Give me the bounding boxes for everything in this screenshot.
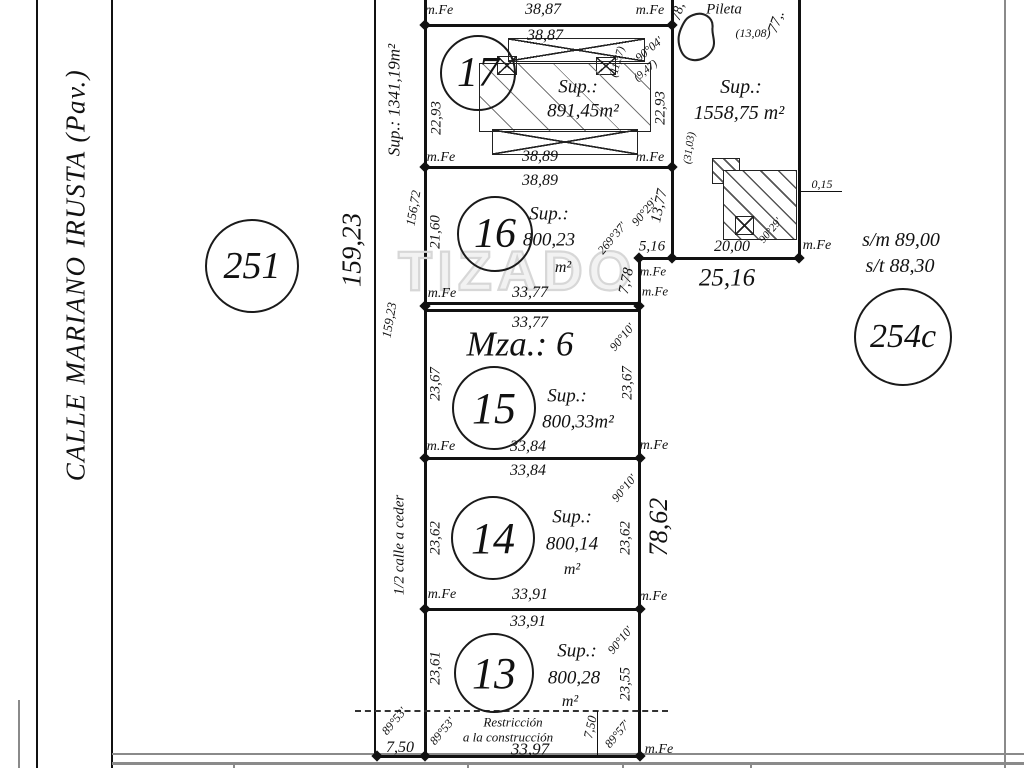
corner-line-sw	[18, 700, 20, 768]
survey-plan: TIZADO m.Fe38,87m.Fe38,8722,93Sup.:891,4…	[0, 0, 1024, 768]
mfe-marker: m.Fe	[640, 439, 668, 453]
building-offset-dim: 0,15	[812, 178, 833, 190]
pileta-aux-dim: (13,08)	[736, 27, 771, 39]
west-boundary-dim: 159,23	[339, 213, 366, 287]
lot17-dim-east: 22,93	[654, 91, 669, 125]
lot16-dim-south: 33,77	[512, 285, 548, 301]
parcel-circle-254c: 254c	[854, 288, 952, 386]
lot15-dim-east: 23,67	[621, 366, 636, 400]
strip-dim: 159,23	[379, 301, 398, 338]
lot14-area: 800,14	[546, 535, 598, 554]
lot13-angle-se: 89°57'	[602, 718, 631, 750]
lot13-dim-north: 33,91	[510, 614, 546, 630]
dim-top-outer: 38,87	[525, 2, 561, 18]
pileta-building-dim: 20,00	[714, 239, 750, 255]
boundary-node	[666, 252, 677, 263]
south-tick	[467, 762, 469, 768]
lot14-south-line	[424, 608, 641, 611]
lot13-sup-label: Sup.:	[557, 642, 597, 661]
lot17-dim-north: 38,87	[527, 28, 563, 44]
mfe-marker: m.Fe	[803, 239, 831, 253]
lot14-dim-east: 23,62	[619, 521, 634, 555]
lot14-sup-label: Sup.:	[552, 508, 592, 527]
block-label: Mza.: 6	[467, 327, 574, 362]
lot17-building-bottom	[492, 129, 638, 155]
lot13-dim-west: 23,61	[429, 651, 444, 685]
dim-25-16: 25,16	[699, 266, 755, 291]
lot15-dim-west: 23,67	[429, 367, 444, 401]
block-west-dim: 156,72	[403, 189, 422, 226]
boundary-node	[634, 452, 645, 463]
boundary-node	[419, 452, 430, 463]
strip-area: Sup.: 1341,19m²	[386, 44, 403, 156]
lot13-south-line	[375, 755, 641, 758]
mfe-marker: m.Fe	[636, 151, 664, 165]
lot16-sup-label: Sup.:	[529, 205, 569, 224]
lot13-area: 800,28	[548, 669, 600, 688]
boundary-node	[419, 603, 430, 614]
mfe-marker: m.Fe	[425, 4, 453, 18]
lot14-dim-north: 33,84	[510, 463, 546, 479]
mfe-marker: m.Fe	[428, 588, 456, 602]
lot14-angle: 90°10'	[609, 472, 638, 504]
lots-east-line-upper	[671, 0, 674, 258]
lot17-sup-label: Sup.:	[558, 78, 598, 97]
level-st: s/t 88,30	[866, 256, 935, 276]
pileta-south-line	[638, 257, 801, 260]
lot17-area: 891,45m²	[547, 102, 619, 121]
lot16-area-unit: m²	[555, 260, 571, 276]
block-east-dim: 78,62	[646, 498, 672, 557]
south-street-line-2	[112, 762, 1024, 765]
offset-leader-line	[800, 191, 842, 192]
mfe-marker: m.Fe	[639, 590, 667, 604]
boundary-node	[666, 161, 677, 172]
south-tick	[750, 762, 752, 768]
south-street-line-1	[112, 753, 1024, 755]
boundary-node	[793, 252, 804, 263]
lot14-dim-south: 33,91	[512, 587, 548, 603]
lot17-dim-south: 38,89	[522, 149, 558, 165]
plan-border-east	[1004, 0, 1006, 768]
street-line-east	[111, 0, 113, 768]
boundary-node	[634, 603, 645, 614]
mfe-marker: m.Fe	[428, 287, 456, 301]
south-tick	[622, 762, 624, 768]
lot15-south-line	[424, 457, 641, 460]
mfe-marker: m.Fe	[640, 265, 666, 278]
lot14-area-unit: m²	[564, 562, 580, 578]
lot13-angle: 90°10'	[605, 624, 634, 656]
mfe-marker: m.Fe	[645, 743, 673, 757]
parcel-circle-16: 16	[457, 196, 533, 272]
boundary-node	[419, 19, 430, 30]
pileta-building-sq	[735, 216, 754, 235]
lot17-south-line	[424, 166, 673, 169]
lot13-angle-sw: 89°53'	[427, 715, 456, 747]
lots-east-line-lower	[638, 257, 641, 757]
level-sm: s/m 89,00	[862, 230, 940, 250]
lot13-area-unit: m²	[562, 694, 578, 710]
lot16-dim-jog: 5,16	[639, 240, 665, 255]
street-name: CALLE MARIANO IRUSTA (Pav.)	[63, 69, 90, 481]
lot15-north-line	[424, 309, 641, 312]
lot13-dim-east: 23,55	[619, 667, 634, 701]
south-tick	[233, 762, 235, 768]
parcel-circle-15: 15	[452, 366, 536, 450]
lot16-dim-east-1: 13,77	[649, 188, 671, 224]
parcel-circle-251: 251	[205, 219, 299, 313]
lot15-sup-label: Sup.:	[547, 387, 587, 406]
pileta-east-line	[798, 0, 801, 259]
street-line-west	[36, 0, 38, 768]
parcel-circle-17: 17	[440, 35, 516, 111]
restriction-label-1: Restricción	[483, 716, 542, 729]
parcel-circle-13: 13	[454, 633, 534, 713]
lot14-dim-west: 23,62	[429, 521, 444, 555]
lot16-dim-west: 21,60	[429, 215, 444, 249]
lot17-dim-west: 22,93	[430, 101, 445, 135]
lot13-dim-south: 33,97	[511, 741, 549, 758]
pileta-area: 1558,75 m²	[694, 103, 784, 123]
lot15-angle: 90°10'	[607, 321, 636, 353]
strip-line-east-lots-west	[424, 0, 427, 757]
pileta-label: Pileta	[706, 3, 742, 18]
mfe-marker: m.Fe	[642, 285, 668, 298]
pileta-sup-label: Sup.:	[720, 77, 762, 97]
strip-width-dim: 7,50	[386, 740, 414, 756]
mfe-marker: m.Fe	[427, 151, 455, 165]
lot15-area: 800,33m²	[542, 413, 614, 432]
strip-line-west	[374, 0, 376, 757]
parcel-circle-14: 14	[451, 496, 535, 580]
mfe-marker: m.Fe	[636, 4, 664, 18]
strip-label: 1/2 calle a ceder	[393, 495, 408, 595]
lot16-dim-north: 38,89	[522, 173, 558, 189]
pileta-aux-dim-2: (31,03)	[682, 131, 697, 164]
mfe-marker: m.Fe	[427, 440, 455, 454]
